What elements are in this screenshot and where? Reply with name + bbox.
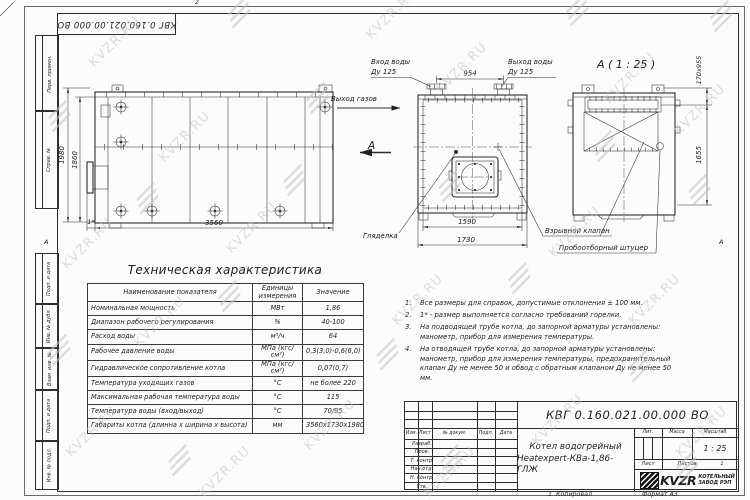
spec-cell-name: Температура воды (вход/выход) [88,405,253,419]
spec-table-row: Номинальная мощностьМВт1,86 [88,302,364,316]
spec-table-row: Расход водым³/ч64 [88,330,364,344]
section-a-leaders [494,142,660,253]
spec-cell-name: Номинальная мощность [88,302,253,316]
notes-list: 1.Все размеры для справок, допустимые от… [405,299,673,386]
tb-brand: KVZR КОТЕЛЬНЫЙ ЗАВОД РЭП [634,469,738,491]
spec-cell-units: °С [253,391,303,405]
footer-copied: Копировал [556,491,592,498]
section-a-title: А ( 1 : 25 ) [596,58,655,71]
title-block: КВГ 0.160.021.00.000 ВО Котел водогрейны… [404,401,737,490]
tb-sheets-value: 1 [712,459,732,469]
dim-length: 3560 [205,219,223,227]
spec-table-row: Температура уходящих газов°Сне более 220 [88,376,364,390]
label-sight-glass: Гляделка [363,232,398,240]
margin-stamp-sign-date-2: Подп. и дата [35,389,59,442]
margin-stamp-sign-date-1: Подп. и дата [35,253,59,305]
water-outlet-pipe [494,84,513,89]
note-text: На отводящей трубе котла, до запорной ар… [420,345,673,384]
sampling-fitting [657,143,664,150]
spec-table-body: Номинальная мощностьМВт1,86Диапазон рабо… [88,302,364,434]
drawing-sheet: 1980 1860 3560 1* [0,0,750,500]
spec-cell-value: 0,3(3,0)-0,6(6,0) [303,344,364,360]
spec-col-name: Наименование показателя [88,284,253,302]
front-view-leaders [371,78,556,234]
spec-cell-value: 70/95 [303,405,364,419]
label-explosion-valve: Взрывной клапан [545,227,610,235]
note-item: 2.1* - размер выполняется согласно требо… [405,311,673,321]
lifting-lug [652,85,664,93]
top-hatch [585,97,661,112]
spec-table-row: Температура воды (вход/выход)°С70/95 [88,405,364,419]
lifting-lug [582,85,594,93]
spec-cell-units: °С [253,405,303,419]
tb-product-name: Котел водогрейный Heatexpert-КВа-1,86-ГЛ… [517,428,634,491]
spec-cell-value: 40-100 [303,316,364,330]
spec-cell-value: 0,07(0,7) [303,360,364,376]
spec-table-row: Диапазон рабочего регулирования%40-100 [88,316,364,330]
note-number: 2. [405,311,420,321]
spec-cell-name: Гидравлическое сопротивление котла [88,360,253,376]
side-view [87,85,333,228]
view-a-letter: А [367,140,375,152]
spec-cell-value: 115 [303,391,364,405]
corner-trim-mark [0,2,14,16]
note-item: 1.Все размеры для справок, допустимые от… [405,299,673,309]
spec-cell-units: МПа (кгс/см²) [253,360,303,376]
note-item: 3.На подводящей трубе котла, до запорной… [405,323,673,342]
kvzr-logo-text: KVZR [660,473,696,488]
label-water-outlet-dn: Ду 125 [507,68,534,76]
spec-cell-value: 1,86 [303,302,364,316]
tb-designation: КВГ 0.160.021.00.000 ВО [517,402,738,428]
section-a-dimensions [661,88,712,205]
label-water-outlet: Выход воды [508,58,553,66]
label-sampling-fitting: Пробоотборный штуцер [559,244,649,252]
spec-cell-name: Диапазон рабочего регулирования [88,316,253,330]
spec-table-row: Рабочее давление водыМПа (кгс/см²)0,3(3,… [88,344,364,360]
label-water-inlet: Вход воды [371,58,411,66]
spec-table: Наименование показателя Единицы измерени… [87,283,364,434]
spec-cell-name: Рабочее давление воды [88,344,253,360]
spec-col-units: Единицы измерения [253,284,303,302]
dim-width-inner: 1590 [458,218,476,226]
spec-cell-value: не более 220 [303,376,364,390]
spec-cell-name: Максимальная рабочая температура воды [88,391,253,405]
dim-height-inner: 1860 [71,151,79,169]
zone-mark-right: А [719,238,723,246]
note-item: 4.На отводящей трубе котла, до запорной … [405,345,673,384]
dim-height-outer: 1980 [58,146,66,164]
margin-stamp-first-use: Перв. примен. [35,35,59,112]
dim-burner: 1* [87,218,95,226]
note-number: 4. [405,345,420,384]
zone-mark-bottom: 1 [548,491,552,498]
note-number: 3. [405,323,420,342]
note-number: 1. [405,299,420,309]
spec-table-row: Максимальная рабочая температура воды°С1… [88,391,364,405]
spec-cell-name: Расход воды [88,330,253,344]
kvzr-factory-name: КОТЕЛЬНЫЙ ЗАВОД РЭП [698,474,735,487]
spec-header-row: Наименование показателя Единицы измерени… [88,284,364,302]
spec-table-row: Габариты котла (длинна х ширина х высота… [88,419,364,433]
tb-scale-value: 1 : 25 [692,437,738,459]
spec-cell-units: МВт [253,302,303,316]
spec-cell-units: мм [253,419,303,433]
zone-mark-top: 2 [195,0,199,6]
label-water-inlet-dn: Ду 125 [370,68,397,76]
spec-cell-name: Температура уходящих газов [88,376,253,390]
water-inlet-pipe [427,84,446,89]
designation-text: КВГ 0.160.021.00.000 ВО [57,19,176,29]
side-view-dimensions [63,88,333,231]
spec-cell-value: 64 [303,330,364,344]
margin-stamp-ref-number: Справ. № [35,110,59,209]
dim-hatch: 170х955 [695,56,703,85]
spec-title: Техническая характеристика [87,263,363,277]
dim-section-height: 1655 [695,146,703,164]
section-a-view [568,85,680,222]
note-text: Все размеры для справок, допустимые откл… [420,299,643,309]
margin-stamp-inv-orig: Инв. № подл. [35,440,59,490]
front-view [413,84,532,220]
spec-table-row: Гидравлическое сопротивление котлаМПа (к… [88,360,364,376]
spec-section: Техническая характеристика Наименование … [87,263,363,434]
margin-stamp-repl-inv: Взам. инв. № [35,347,59,391]
spec-cell-value: 3560х1730х1980 [303,419,364,433]
flue-flange [87,162,93,193]
spec-cell-units: МПа (кгс/см²) [253,344,303,360]
lifting-lug [319,85,332,92]
note-text: 1* - размер выполняется согласно требова… [420,311,622,321]
dim-width-outer: 1730 [457,236,475,244]
zone-mark-left: А [44,238,48,246]
spec-cell-name: Габариты котла (длинна х ширина х высота… [88,419,253,433]
spec-cell-units: % [253,316,303,330]
dim-pipe-span: 954 [463,70,476,78]
note-text: На подводящей трубе котла, до запорной а… [420,323,673,342]
kvzr-logo-icon [641,473,658,488]
label-gas-outlet: Выход газов [331,95,377,103]
spec-col-value: Значение [303,284,364,302]
designation-stamp-rotated: КВГ 0.160.021.00.000 ВО [57,13,176,35]
spec-cell-units: м³/ч [253,330,303,344]
sight-glass [454,150,458,154]
footer-format: Формат А3 [642,491,678,498]
lifting-lug [112,85,123,92]
margin-stamp-inv-dupl: Инв. № дубл. [35,303,59,349]
spec-cell-units: °С [253,376,303,390]
